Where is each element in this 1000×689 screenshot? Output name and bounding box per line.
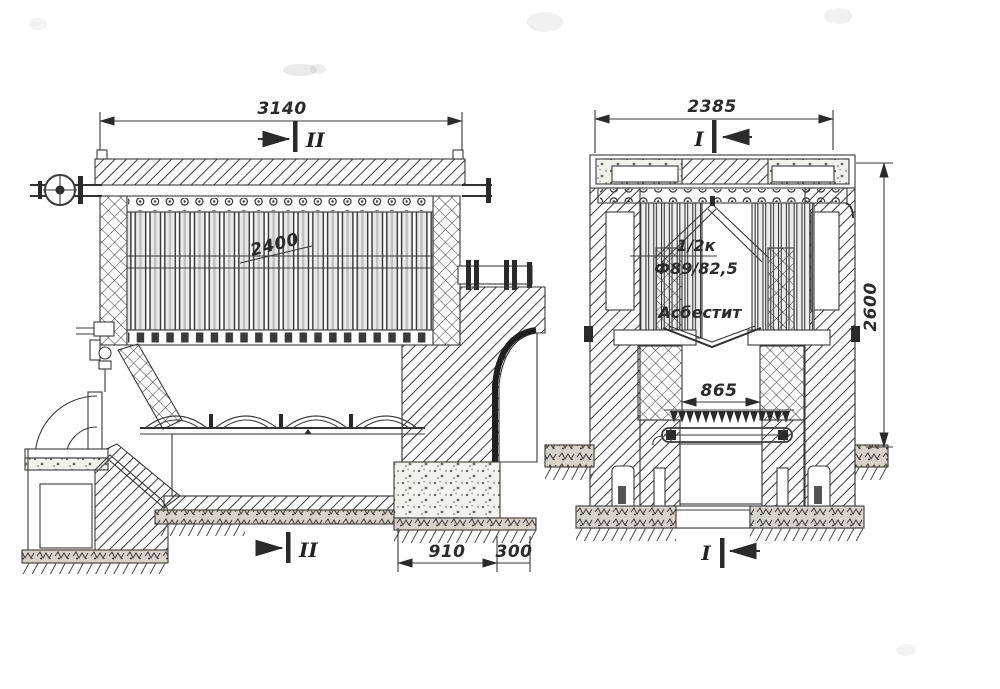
- front-valve-fittings: [76, 322, 114, 392]
- right-view-cross-section: 2385 I: [545, 97, 893, 568]
- boiler-technical-drawing: 3140 II: [0, 0, 1000, 689]
- door-slot-left-latch: [618, 486, 626, 504]
- section-label-I-top: I: [693, 127, 704, 151]
- section-label-II-bottom: II: [298, 538, 318, 562]
- slab-end-post-left: [97, 150, 107, 159]
- wall-tie-left: [584, 326, 593, 342]
- furnace-block-right: [760, 346, 804, 420]
- dim-text-overall-width-left: 3140: [257, 99, 306, 119]
- tube-caps-row: [128, 330, 432, 345]
- dim-overall-width: 3140: [100, 99, 462, 158]
- header-pipe-right-top: [462, 178, 492, 203]
- left-view-longitudinal-section: 3140 II: [22, 99, 545, 574]
- tube-size-note: Ф89/82,5: [654, 259, 737, 278]
- dim-text-grate-width: 865: [701, 381, 738, 401]
- section-label-I-bottom: I: [700, 541, 711, 565]
- section-mark-I-top: I: [693, 120, 752, 153]
- firebrick-arches: [140, 414, 425, 434]
- dim-overall-height: 2600: [856, 163, 893, 447]
- top-slab: [95, 159, 465, 185]
- dim-text-overall-height: 2600: [861, 282, 881, 331]
- dim-text-foundation-910: 910: [429, 542, 466, 562]
- furnace-block-left: [638, 346, 682, 420]
- rear-foundation-block: [394, 462, 500, 518]
- tube-bank: 2400: [127, 196, 433, 345]
- wall-niche-right: [811, 212, 839, 310]
- section-mark-II-bottom: II: [256, 532, 318, 563]
- tube-nipples-row: [128, 198, 432, 211]
- tube-count-note: 1/2к: [677, 236, 717, 255]
- wall-tie-right: [851, 326, 860, 342]
- top-slab-right-view: [596, 159, 849, 184]
- insulation-column-right: [433, 196, 460, 345]
- section-mark-I-bottom: I: [700, 538, 760, 568]
- dim-text-overall-width-right: 2385: [687, 97, 736, 117]
- dim-text-foundation-300: 300: [496, 542, 533, 562]
- insulation-label: Асбестит: [656, 303, 743, 322]
- slab-end-post-right: [453, 150, 463, 159]
- section-mark-II-top: II: [258, 121, 325, 152]
- door-swing: [35, 392, 102, 458]
- steam-pipe-stub: [458, 260, 532, 290]
- header-pipe-left: [30, 174, 102, 206]
- dim-grate-width: 865: [682, 381, 760, 410]
- gas-duct: [172, 434, 402, 496]
- drawing-sheet: 3140 II: [0, 0, 1000, 689]
- section-label-II-top: II: [305, 128, 325, 152]
- door-slot-right-latch: [814, 486, 822, 504]
- front-door-opening: [40, 484, 92, 548]
- wall-niche-left: [606, 212, 634, 310]
- ash-pit: [680, 444, 762, 504]
